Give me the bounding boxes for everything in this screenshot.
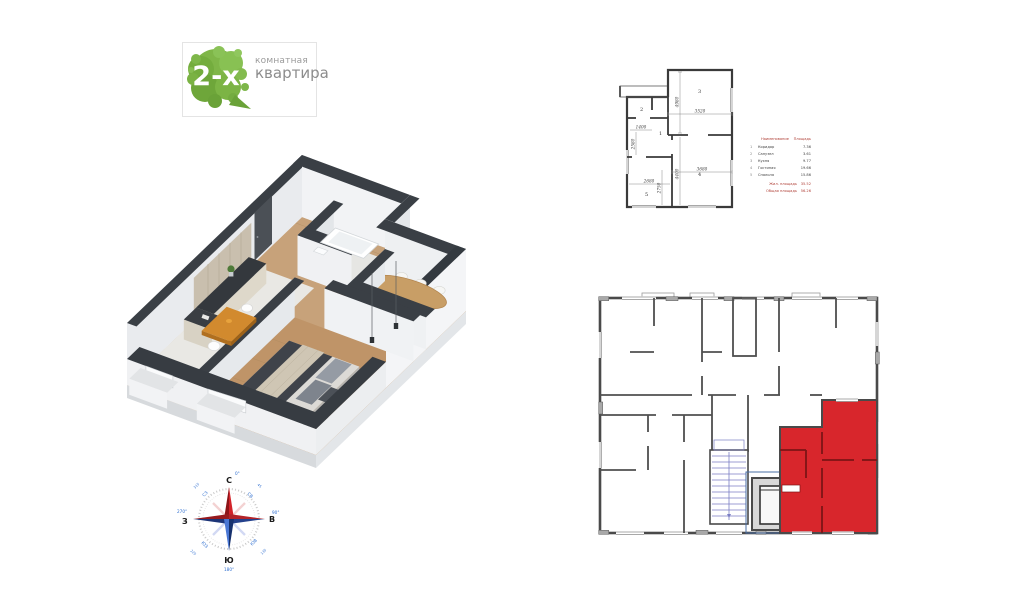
legend-row-area: 19.66 (801, 166, 812, 170)
compass-ne: СВ (246, 491, 254, 499)
apartment-flyer: 2-х комнатная квартира (0, 0, 1021, 600)
legend-total-value: 35.52 (801, 182, 811, 186)
badge-room-count: 2-х (192, 61, 239, 92)
area-legend: Наименование Площадь 1 Коридор 7.36 2 Са… (747, 135, 815, 195)
compass-nw: СЗ (201, 490, 209, 498)
legend-total-label: Общая площадь (766, 189, 797, 193)
compass-deg-nw: 315 (193, 482, 200, 489)
apartment-entry-door (782, 485, 800, 492)
dim-1400: 1400 (636, 125, 647, 130)
dim-4980: 4980 (675, 96, 680, 108)
compass-w: З (182, 517, 188, 526)
room-2: 2 (640, 107, 643, 113)
compass-deg-e: 90° (272, 510, 279, 515)
legend-row-name: Санузел (758, 152, 774, 156)
legend-row-name: Спальня (758, 173, 774, 177)
room-4: 4 (698, 172, 701, 178)
compass-deg-s: 180° (224, 567, 234, 572)
legend-row-area: 7.36 (803, 145, 812, 149)
legend-row-area: 15.86 (801, 173, 812, 177)
room-3: 3 (698, 89, 701, 95)
compass-deg-w: 270° (177, 509, 187, 514)
room-5: 5 (645, 192, 648, 198)
staircase (710, 440, 748, 524)
compass-s: Ю (224, 556, 233, 565)
highlighted-apartment[interactable] (780, 399, 877, 534)
plan-windows (627, 88, 732, 207)
dim-3520: 3520 (695, 109, 706, 114)
badge-type-line2: квартира (255, 66, 329, 82)
dim-2580: 2580 (631, 138, 636, 150)
legend-row-name: Кухня (758, 159, 769, 163)
building-floor-plan (596, 292, 882, 538)
dim-2750: 2750 (657, 182, 662, 194)
dim-3680: 3680 (697, 167, 708, 172)
legend-row-name: Коридор (758, 145, 775, 149)
apartment-3d-render (110, 145, 520, 490)
legend-row-area: 9.77 (803, 159, 811, 163)
leaf-bubble-icon: 2-х (183, 43, 257, 115)
room-1: 1 (659, 131, 662, 137)
floor-plan-2d: 3520 4980 1400 2580 3680 4400 2680 2750 … (612, 62, 747, 212)
plant-icon (227, 265, 234, 272)
legend-rows: 1 Коридор 7.36 2 Санузел 3.61 3 Кухня 9.… (750, 145, 812, 177)
legend-header-area: Площадь (794, 137, 811, 141)
legend-total-label: Жил. площадь (769, 182, 797, 186)
plan-outer-walls (627, 70, 732, 207)
legend-row-num: 3 (750, 159, 752, 163)
legend-totals: Жил. площадь 35.52 Общая площадь 56.26 (766, 182, 812, 193)
legend-row-area: 3.61 (803, 152, 811, 156)
legend-row-num: 2 (750, 152, 752, 156)
compass-deg-se: 135 (260, 548, 267, 555)
legend-header-name: Наименование (761, 137, 790, 141)
compass-deg-n: 0° (235, 471, 240, 476)
legend-row-num: 1 (750, 145, 752, 149)
compass-rose-icon: С В Ю З 0° 90° 180° 270° СВ 45 СЗ 315 ЮВ… (176, 462, 284, 574)
plan-balcony (620, 86, 668, 97)
plan-inner-walls (627, 70, 732, 207)
compass-deg-ne: 45 (256, 483, 262, 489)
compass-e: В (269, 515, 275, 524)
compass-deg-sw: 225 (189, 549, 196, 556)
compass-sw: ЮЗ (200, 540, 209, 549)
apartment-type-badge: 2-х комнатная квартира (182, 42, 317, 117)
plan-dimension-lines (629, 72, 732, 205)
legend-total-value: 56.26 (801, 189, 812, 193)
compass-n: С (226, 476, 232, 485)
legend-row-num: 5 (750, 173, 752, 177)
dim-2680: 2680 (643, 179, 655, 184)
legend-row-name: Гостиная (758, 166, 776, 170)
dim-4400: 4400 (675, 168, 680, 180)
legend-row-num: 4 (750, 166, 753, 170)
